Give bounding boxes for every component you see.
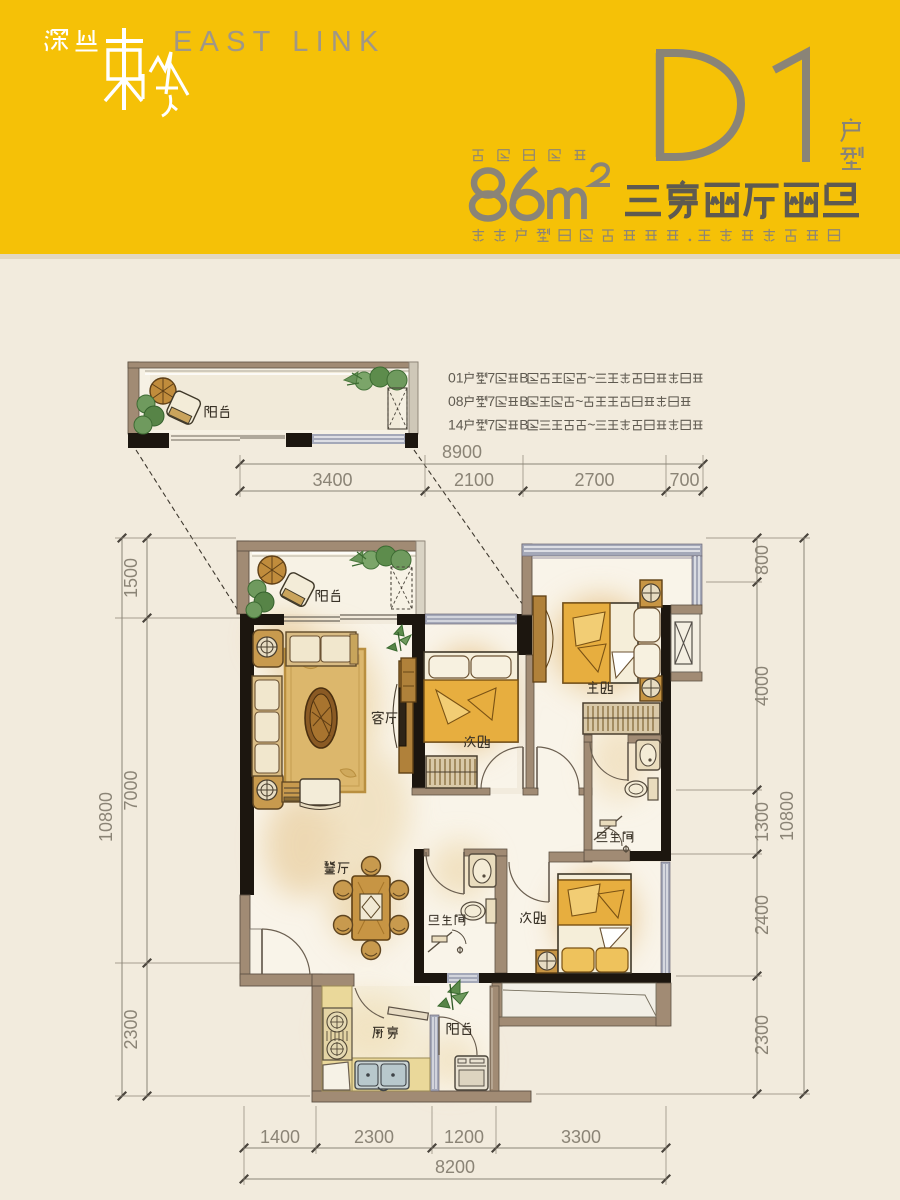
svg-text:8900: 8900 xyxy=(442,442,482,462)
svg-text:~: ~ xyxy=(587,370,595,386)
svg-text:1300: 1300 xyxy=(752,802,772,842)
svg-text:~: ~ xyxy=(587,416,595,432)
svg-text:2300: 2300 xyxy=(752,1015,772,1055)
svg-text:800: 800 xyxy=(752,545,772,575)
svg-text:3400: 3400 xyxy=(312,470,352,490)
svg-text:10800: 10800 xyxy=(777,791,797,841)
svg-text:B: B xyxy=(519,393,528,409)
svg-text:7: 7 xyxy=(487,370,495,386)
svg-text:2300: 2300 xyxy=(121,1009,141,1049)
svg-text:7000: 7000 xyxy=(121,770,141,810)
svg-text:10800: 10800 xyxy=(96,792,116,842)
svg-text:1400: 1400 xyxy=(260,1127,300,1147)
svg-text:8200: 8200 xyxy=(435,1157,475,1177)
svg-text:1200: 1200 xyxy=(444,1127,484,1147)
svg-text:7: 7 xyxy=(487,393,495,409)
svg-text:2700: 2700 xyxy=(574,470,614,490)
svg-text:B: B xyxy=(519,370,528,386)
svg-text:EAST LINK: EAST LINK xyxy=(173,26,386,58)
svg-text:2100: 2100 xyxy=(454,470,494,490)
svg-text:~: ~ xyxy=(575,393,583,409)
svg-text:B: B xyxy=(519,416,528,432)
svg-text:700: 700 xyxy=(669,470,699,490)
svg-text:2300: 2300 xyxy=(354,1127,394,1147)
svg-text:4000: 4000 xyxy=(752,666,772,706)
svg-text:08: 08 xyxy=(448,393,464,409)
svg-text:01: 01 xyxy=(448,370,464,386)
svg-text:2400: 2400 xyxy=(752,895,772,935)
svg-text:3300: 3300 xyxy=(561,1127,601,1147)
svg-text:7: 7 xyxy=(487,416,495,432)
svg-text:1500: 1500 xyxy=(121,558,141,598)
svg-text:14: 14 xyxy=(448,416,464,432)
